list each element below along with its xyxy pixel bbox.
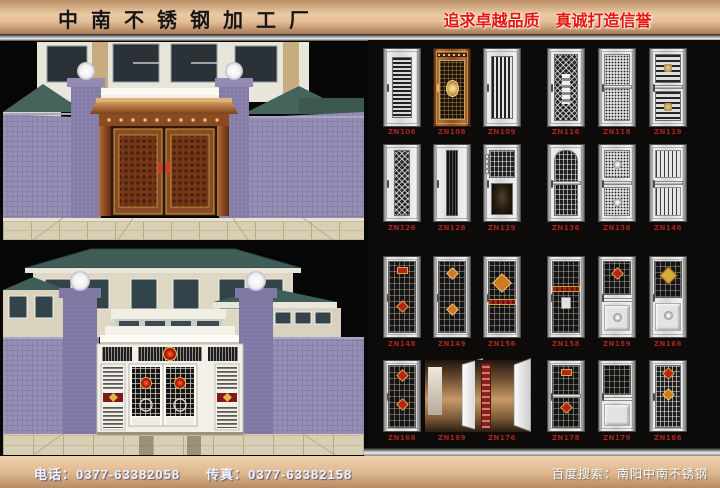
door-model-label: ZN178 [539,434,593,442]
door-part-band [602,85,633,89]
door-handle [551,294,553,302]
door-model-label: ZN109 [475,128,529,136]
door-handle [602,84,604,92]
door-part-band [551,181,582,185]
door-thumbnail-ZN156 [483,256,521,338]
door-thumbnail-ZN176 [475,360,529,432]
door-part-hlines3 [602,298,632,303]
door-model-label: ZN179 [590,434,644,442]
door-model-label: ZN148 [375,340,429,348]
door-handle [653,393,655,401]
baidu-search-hint: 百度搜索：南阳中南不锈钢 [552,465,708,482]
door-model-label: ZN128 [425,224,479,232]
door-handle [487,294,489,302]
door-part-band [602,181,633,185]
door-thumbnail-ZN148 [383,256,421,338]
door-thumbnail-ZN166 [649,256,687,338]
door-thumbnail-ZN106 [383,48,421,127]
slogan-text: 追求卓越品质 真诚打造信誉 [385,7,710,31]
door-handle [602,393,604,401]
door-thumbnail-ZN186 [649,360,687,432]
door-model-label: ZN118 [590,128,644,136]
door-part-leaf2 [514,358,531,432]
door-model-label: ZN129 [475,224,529,232]
door-part-mirror [428,367,442,415]
door-part-vlines [655,187,680,216]
door-thumbnail-ZN118 [598,48,636,127]
door-model-label: ZN116 [539,128,593,136]
door-handle [387,294,389,302]
door-part-dmesh2 [394,150,411,215]
door-part-goldemblem [664,64,672,72]
door-model-label: ZN149 [425,340,479,348]
door-handle [387,84,389,92]
door-product-grid: ZN106ZN108ZN109ZN116ZN118ZN119ZN126ZN128… [368,40,720,448]
door-thumbnail-ZN149 [433,256,471,338]
globe-lamp [246,271,266,291]
door-part-vlines [655,150,680,178]
door-part-rosette [613,313,622,322]
door-part-emboss [604,404,631,426]
metal-divider-bottom [364,448,720,456]
door-thumbnail-ZN126 [383,144,421,222]
door-handle [387,180,389,188]
door-handle [437,180,439,188]
door-part-darkgrille [603,365,630,396]
door-model-label: ZN166 [641,340,695,348]
door-handle [387,393,389,401]
door-handle [602,180,604,188]
door-model-label: ZN168 [375,434,429,442]
door-thumbnail-ZN116 [547,48,585,127]
door-thumbnail-ZN138 [598,144,636,222]
header-bar: 中南不锈钢加工厂 追求卓越品质 真诚打造信誉 [0,0,720,34]
phone-number: 电话：0377-63382058 [34,467,180,482]
door-part-darkstrip [446,150,459,215]
door-part-darkart [491,183,513,215]
contact-info: 电话：0377-63382058传真：0377-63382158 [34,464,378,483]
door-model-label: ZN158 [539,340,593,348]
door-handle [551,180,553,188]
door-handle [487,84,489,92]
door-part-redstrip [481,363,490,429]
door-model-label: ZN108 [425,128,479,136]
door-handle [487,180,489,188]
door-part-redband [552,286,579,292]
door-model-label: ZN176 [475,434,529,442]
door-handle [653,180,655,188]
door-model-label: ZN186 [641,434,695,442]
pavement [3,432,364,455]
door-part-goldoval [446,80,459,97]
door-thumbnail-ZN178 [547,360,585,432]
door-thumbnail-ZN146 [649,144,687,222]
door-part-grille [489,150,514,177]
door-model-label: ZN146 [641,224,695,232]
building-rendering-copper-gate [3,42,364,240]
pavement [3,218,364,240]
door-handle [551,84,553,92]
door-thumbnail-ZN158 [547,256,585,338]
door-handle [551,393,553,401]
door-thumbnail-ZN128 [433,144,471,222]
door-model-label: ZN136 [539,224,593,232]
globe-lamp [225,62,243,80]
door-thumbnail-ZN179 [598,360,636,432]
door-thumbnail-ZN136 [547,144,585,222]
door-part-lightsq [561,297,571,309]
catalog-page: 中南不锈钢加工厂 追求卓越品质 真诚打造信誉 [0,0,720,488]
copper-gate [90,98,238,216]
door-part-redrect [397,267,408,274]
door-model-label: ZN138 [590,224,644,232]
door-model-label: ZN169 [425,434,479,442]
door-handle [653,294,655,302]
door-model-label: ZN156 [475,340,529,348]
door-thumbnail-ZN108 [433,48,471,127]
door-handle [653,84,655,92]
door-part-band [551,394,582,398]
globe-lamp [77,62,95,80]
door-part-redrect [561,369,572,376]
door-part-darkgrille [488,261,515,333]
stainless-gate [97,344,243,434]
red-emblem [175,378,186,389]
door-part-hlines3 [602,397,632,402]
footer-bar: 电话：0377-63382058传真：0377-63382158 百度搜索：南阳… [0,456,720,488]
door-thumbnail-ZN119 [649,48,687,127]
door-model-label: ZN119 [641,128,695,136]
door-part-vslats [491,56,513,119]
door-thumbnail-ZN109 [483,48,521,127]
fax-number: 传真：0377-63382158 [206,467,352,482]
door-part-studrow [437,53,467,57]
door-part-goldemblem [664,103,672,111]
door-handle [602,294,604,302]
door-thumbnail-ZN159 [598,256,636,338]
door-thumbnail-ZN169 [425,360,479,432]
building-rendering-stainless-gate [3,246,364,455]
door-model-label: ZN126 [375,224,429,232]
red-emblem [164,348,177,361]
door-part-band [653,181,684,185]
door-model-label: ZN106 [375,128,429,136]
globe-lamp [70,271,90,291]
door-handle [437,84,439,92]
door-part-lightchain [562,74,570,104]
red-emblem [141,378,152,389]
door-thumbnail-ZN129 [483,144,521,222]
company-title: 中南不锈钢加工厂 [28,4,352,33]
door-part-redband [488,299,515,305]
door-part-band [653,85,684,89]
door-part-hstripes [392,57,411,117]
door-thumbnail-ZN168 [383,360,421,432]
door-model-label: ZN159 [590,340,644,348]
door-handle [437,294,439,302]
